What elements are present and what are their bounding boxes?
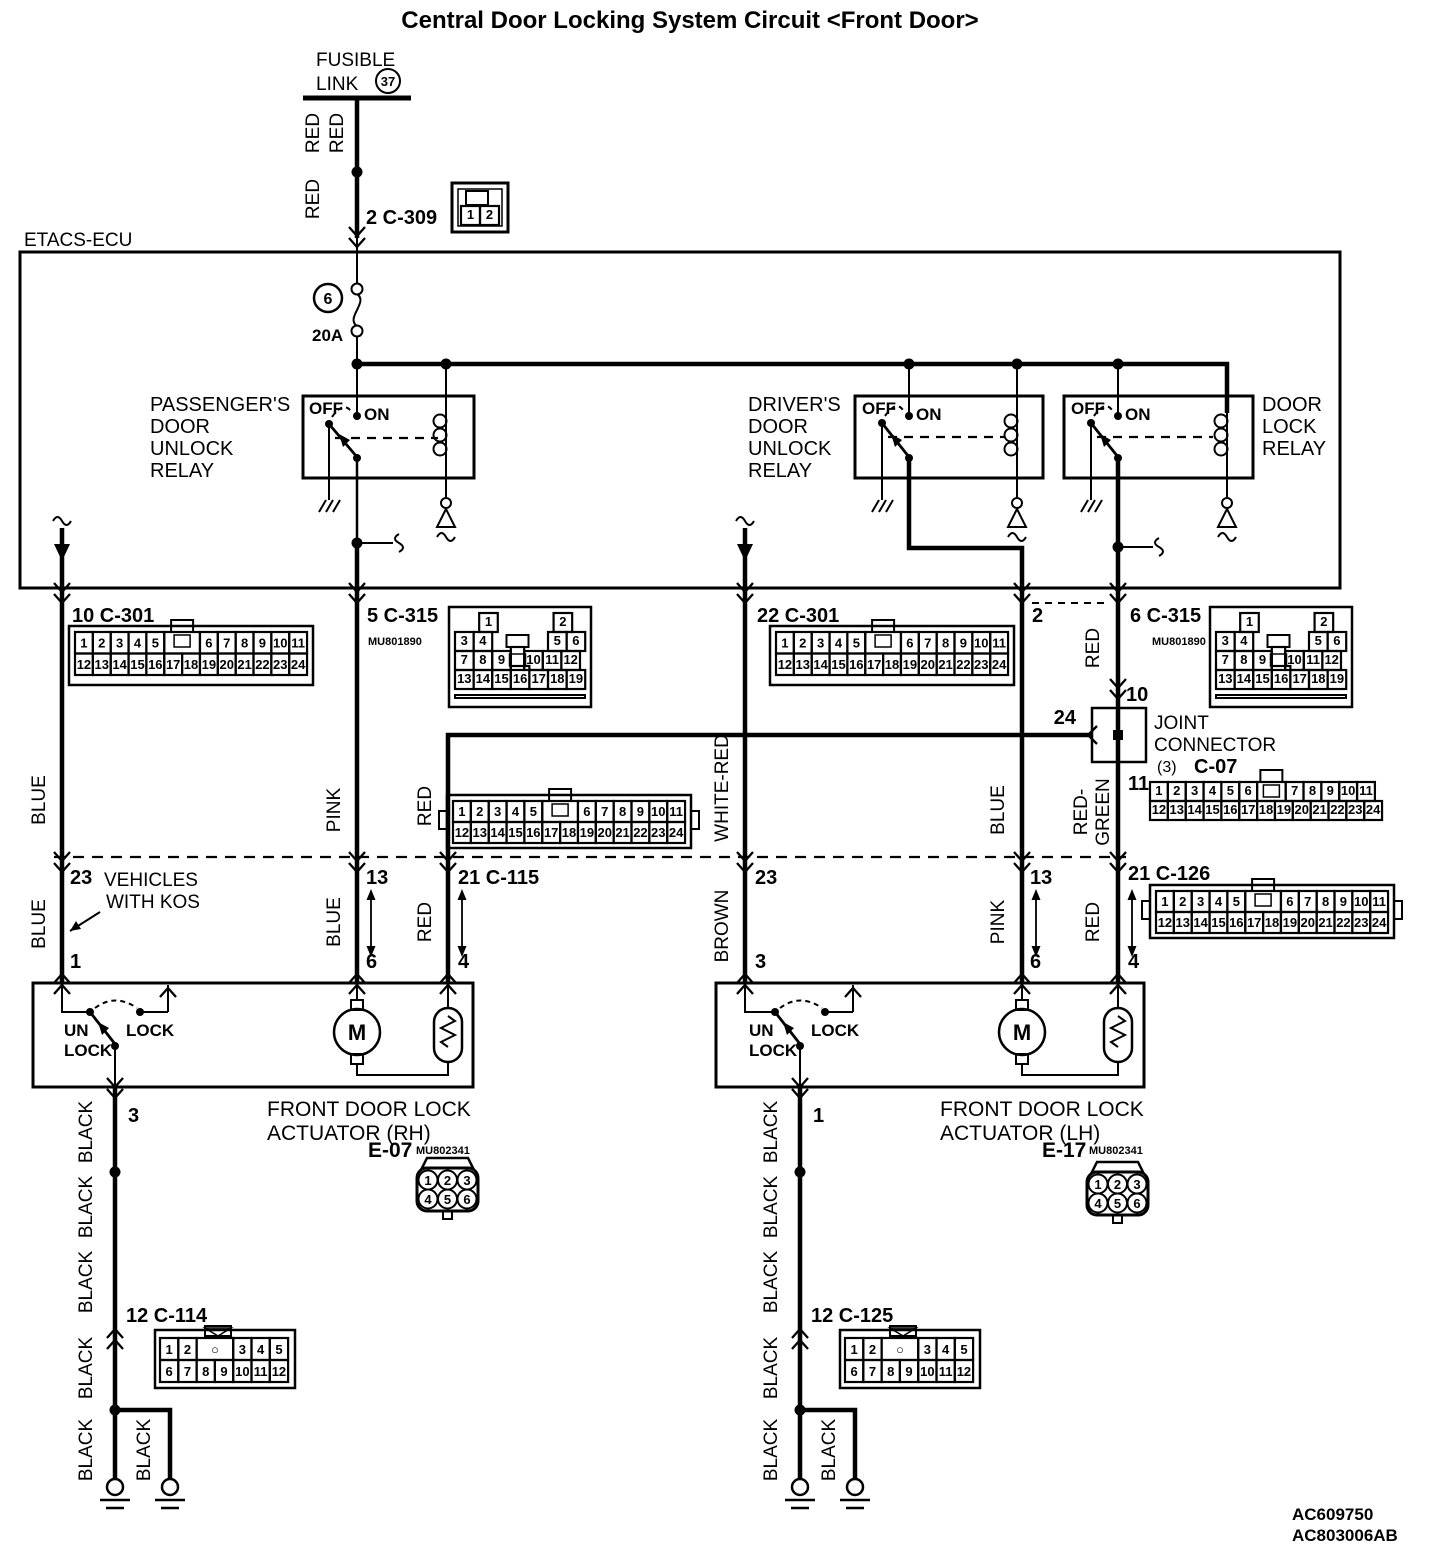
e07-connector-face-pin: 3 <box>463 1173 470 1188</box>
c315-right-pin-grid-pin: 1 <box>1246 614 1253 629</box>
c315-left-pin-grid-pin: 4 <box>479 633 487 648</box>
c115-pin-grid-pin: 17 <box>544 825 558 840</box>
contact-dot <box>1114 454 1122 462</box>
c301-right-pin-grid-pin: 22 <box>956 657 970 672</box>
c315-right-pin-grid-pin: 17 <box>1292 671 1306 686</box>
c115-pin-grid-pin: 5 <box>530 804 537 819</box>
c07-pin-grid-pin: 1 <box>1155 783 1162 798</box>
pin-number: 4 <box>458 951 470 973</box>
c115-pin-grid-pin: 24 <box>669 825 684 840</box>
switch-position: LOCK <box>64 1041 113 1060</box>
c07-pin-grid-pin: 19 <box>1277 802 1291 817</box>
c301-left-pin-grid-pin: 23 <box>273 657 287 672</box>
c301-left-pin-grid-pin: 9 <box>259 636 266 651</box>
c315-right-pin-grid-pin: 12 <box>1324 652 1338 667</box>
c315-left-pin-grid-pin: 1 <box>485 614 492 629</box>
c301-left-pin-grid-pin: 13 <box>95 657 109 672</box>
c301-right-pin-grid-pin: 11 <box>992 636 1006 651</box>
c315-right-pin-grid-pin: 4 <box>1240 633 1248 648</box>
fusible-link-label-2: LINK <box>316 74 359 95</box>
c315-right-pin-grid-pin: 9 <box>1259 652 1266 667</box>
pin-number: 1 <box>70 951 81 973</box>
contact-dot <box>111 1042 119 1050</box>
c301-left-pin-grid-pin: 8 <box>241 636 248 651</box>
c114-pin-grid-pin: 3 <box>239 1342 246 1357</box>
switch-position: LOCK <box>811 1021 860 1040</box>
e07-connector-face-pin: 2 <box>444 1173 451 1188</box>
switch-position: LOCK <box>126 1021 175 1040</box>
c115-pin-grid-pin: 2 <box>476 804 483 819</box>
wire-color-blue: BLUE <box>988 785 1009 835</box>
switch-position: UN <box>749 1021 774 1040</box>
pin-number: 1 <box>813 1105 824 1127</box>
c126-pin-grid-pin: 4 <box>1215 894 1223 909</box>
c301-right-pin-grid-pin: 5 <box>853 636 860 651</box>
wire-color-red: RED <box>327 113 348 153</box>
c114-pin-grid-pin: 9 <box>220 1364 227 1379</box>
c301-right-pin-grid-pin: 14 <box>813 657 828 672</box>
c301-left-pin-grid-pin: 17 <box>166 657 180 672</box>
joint-connector-label: (3) <box>1157 759 1177 776</box>
c126-pin-grid-pin: 20 <box>1300 915 1314 930</box>
c301-right-pin-grid-pin: 10 <box>974 636 988 651</box>
c125-pin-grid-pin: 12 <box>957 1364 971 1379</box>
c115-pin-grid-pin: 1 <box>458 804 465 819</box>
fuse-terminal-top <box>352 284 363 295</box>
pin-number: 11 <box>1128 773 1149 795</box>
c301-right-pin-grid-pin: 24 <box>992 657 1007 672</box>
pin-number: 13 <box>366 867 388 889</box>
wire-color-black: BLACK <box>761 1251 782 1314</box>
c07-pin-grid-pin: 15 <box>1205 802 1219 817</box>
c315-right-pin-grid-pin: 11 <box>1306 652 1320 667</box>
c315-right-pin-grid-pin: 18 <box>1311 671 1325 686</box>
c07-pin-grid-pin: 10 <box>1341 783 1355 798</box>
c315-right-pin-grid-pin: 19 <box>1330 671 1344 686</box>
pin-connector: 10 C-301 <box>72 605 154 627</box>
c315-right-pin-grid-pin: 8 <box>1240 652 1247 667</box>
c126-pin-grid-pin: 24 <box>1372 915 1387 930</box>
junction-dot <box>1012 359 1023 370</box>
c115-pin-grid-pin: 15 <box>508 825 522 840</box>
c114-pin-grid-pin: 7 <box>184 1364 191 1379</box>
c315-right-pin-grid-pin: 3 <box>1222 633 1229 648</box>
joint-connector-label: JOINT <box>1154 713 1209 734</box>
c126-pin-grid-pin: 2 <box>1179 894 1186 909</box>
c315-right-pin-grid-pin: 2 <box>1320 614 1327 629</box>
c125-pin-grid-pin: 5 <box>960 1342 967 1357</box>
connector-part-no: MU802341 <box>416 1145 470 1157</box>
c315-left-pin-grid-pin: 10 <box>526 652 540 667</box>
c125-pin-grid-pin: 7 <box>869 1364 876 1379</box>
junction-dot <box>795 1405 806 1416</box>
junction-dot <box>1113 359 1124 370</box>
c126-pin-grid-pin: 1 <box>1161 894 1168 909</box>
actuator-connector: E-07 <box>368 1139 412 1162</box>
pin-number: 23 <box>70 867 92 889</box>
c07-pin-grid-pin: 5 <box>1227 783 1234 798</box>
c301-left-pin-grid-pin: 5 <box>152 636 159 651</box>
c126-pin-grid-pin: 9 <box>1340 894 1347 909</box>
relay-name: UNLOCK <box>748 438 832 460</box>
switch-position: UN <box>64 1021 89 1040</box>
c309-pin-grid-pin: 1 <box>467 207 474 222</box>
c126-pin-grid-pin: 18 <box>1265 915 1279 930</box>
ground-symbol <box>792 1479 808 1495</box>
c315-right-pin-grid-pin: 7 <box>1222 652 1229 667</box>
c126-pin-grid-pin: 23 <box>1354 915 1368 930</box>
wire-color-blue: BLUE <box>29 899 50 949</box>
kos-note: WITH KOS <box>106 892 200 913</box>
c315-right-pin-grid-pin: 13 <box>1218 671 1232 686</box>
c115-pin-grid-pin: 10 <box>651 804 665 819</box>
junction-dot <box>110 1405 121 1416</box>
contact-dot <box>821 1008 829 1016</box>
pin-connector-c309: 2 C-309 <box>366 207 437 229</box>
c315-left-pin-grid-pin: 15 <box>494 671 508 686</box>
relay-name: RELAY <box>748 460 812 482</box>
e17-connector-face-pin: 1 <box>1094 1177 1101 1192</box>
c126-pin-grid-pin: 21 <box>1318 915 1332 930</box>
c301-right-pin-grid-pin: 4 <box>835 636 843 651</box>
c07-pin-grid-pin: 2 <box>1173 783 1180 798</box>
c07-pin-grid-pin: 9 <box>1327 783 1334 798</box>
c07-pin-grid-pin: 23 <box>1348 802 1362 817</box>
c07-pin-grid-pin: 17 <box>1241 802 1255 817</box>
pin-connector: 12 C-125 <box>811 1305 893 1327</box>
c115-pin-grid-pin: 6 <box>583 804 590 819</box>
c07-pin-grid-pin: 12 <box>1152 802 1166 817</box>
wiring-diagram-page: Central Door Locking System Circuit <Fro… <box>0 0 1456 1552</box>
wire-color-black: BLACK <box>76 1419 97 1482</box>
wire-color-black: BLACK <box>761 1176 782 1239</box>
relay-name: DRIVER'S <box>748 394 841 416</box>
pin-connector: 5 C-315 <box>367 605 438 627</box>
c126-pin-grid-pin: 5 <box>1233 894 1240 909</box>
c301-left-pin-grid-pin: 12 <box>77 657 91 672</box>
c07-pin-grid-pin: 18 <box>1259 802 1273 817</box>
relay-name: UNLOCK <box>150 438 234 460</box>
e07-connector-face-pin: 5 <box>444 1192 451 1207</box>
fusible-link-label: FUSIBLE <box>316 50 395 71</box>
c301-right-pin-grid-pin: 9 <box>960 636 967 651</box>
e07-connector-face-pin: 4 <box>424 1192 432 1207</box>
c315-left-pin-grid-pin: 6 <box>572 633 579 648</box>
c315-left-pin-grid-pin: 3 <box>461 633 468 648</box>
c125-pin-grid-pin: 4 <box>942 1342 950 1357</box>
c301-right-pin-grid-pin: 23 <box>974 657 988 672</box>
contact-dot <box>771 1008 779 1016</box>
c315-right-pin-grid-pin: 14 <box>1237 671 1252 686</box>
contact-dot <box>905 454 913 462</box>
c114-pin-grid-pin: 4 <box>257 1342 265 1357</box>
c315-right-pin-grid-pin: 5 <box>1315 633 1322 648</box>
c301-left-pin-grid-pin: 6 <box>205 636 212 651</box>
c301-left-pin-grid-pin: 16 <box>148 657 162 672</box>
c126-pin-grid-pin: 10 <box>1354 894 1368 909</box>
c115-pin-grid-pin: 3 <box>494 804 501 819</box>
c301-right-pin-grid-pin: 1 <box>781 636 788 651</box>
fuse-terminal-bottom <box>352 326 363 337</box>
doc-code: AC803006AB <box>1292 1526 1398 1545</box>
motor-letter: M <box>348 1020 366 1045</box>
c115-pin-grid-pin: 12 <box>455 825 469 840</box>
joint-connector-id: C-07 <box>1194 756 1237 778</box>
e17-connector-face-pin: 5 <box>1114 1196 1121 1211</box>
c114-pin-grid-pin: 11 <box>254 1364 268 1379</box>
c301-left-pin-grid-pin: 19 <box>202 657 216 672</box>
relay-name: RELAY <box>150 460 214 482</box>
c309-pin-grid-pin: 2 <box>486 207 493 222</box>
c126-pin-grid-pin: 14 <box>1193 915 1208 930</box>
c126-pin-grid-pin: 16 <box>1229 915 1243 930</box>
c301-right-pin-grid-pin: 20 <box>920 657 934 672</box>
connector-part-no: MU801890 <box>1152 636 1206 648</box>
kos-note: VEHICLES <box>104 870 198 891</box>
fuse-number: 6 <box>324 291 333 308</box>
c114-pin-grid-pin: 1 <box>166 1342 173 1357</box>
relay-name: DOOR <box>150 416 210 438</box>
ground-symbol <box>107 1479 123 1495</box>
c315-left-pin-grid-pin: 19 <box>569 671 583 686</box>
wire-color-red: RED <box>303 179 324 219</box>
c301-right-pin-grid-pin: 2 <box>799 636 806 651</box>
c301-left-pin-grid-pin: 22 <box>255 657 269 672</box>
wire-color-brown: BROWN <box>712 890 733 963</box>
fuse-rating: 20A <box>312 326 343 345</box>
c301-right-pin-grid-pin: 6 <box>906 636 913 651</box>
c315-left-pin-grid-pin: 7 <box>461 652 468 667</box>
c125-pin-grid-pin: 11 <box>939 1364 953 1379</box>
c07-pin-grid-pin: 3 <box>1191 783 1198 798</box>
relay-contact: OFF <box>1071 399 1105 418</box>
c07-pin-grid-pin: 11 <box>1359 783 1373 798</box>
ground-symbol <box>162 1479 178 1495</box>
c115-pin-grid-pin: 7 <box>601 804 608 819</box>
c315-left-pin-grid-pin: 18 <box>550 671 564 686</box>
actuator-name: FRONT DOOR LOCK <box>940 1098 1144 1121</box>
e17-connector-face-pin: 2 <box>1114 1177 1121 1192</box>
c125-pin-grid-pin: 3 <box>924 1342 931 1357</box>
pin-number: 13 <box>1030 867 1052 889</box>
junction-dot <box>441 359 452 370</box>
e17-connector-face-pin: 4 <box>1094 1196 1102 1211</box>
c315-left-pin-grid-pin: 2 <box>559 614 566 629</box>
pin-number: 10 <box>1126 684 1148 706</box>
actuator-name: FRONT DOOR LOCK <box>267 1098 471 1121</box>
c126-pin-grid-pin: 15 <box>1211 915 1225 930</box>
relay-contact: OFF <box>309 399 343 418</box>
c114-pin-grid-pin: 8 <box>202 1364 209 1379</box>
wire-color-black: BLACK <box>761 1337 782 1400</box>
c301-left-pin-grid-pin: 15 <box>130 657 144 672</box>
junction-dot <box>352 167 363 178</box>
wire-color-pink: PINK <box>988 900 1009 945</box>
c301-left-pin-grid-pin: 20 <box>219 657 233 672</box>
contact-dot <box>878 419 886 427</box>
c315-right-pin-grid-pin: 6 <box>1333 633 1340 648</box>
relay-name: DOOR <box>1262 394 1322 416</box>
pin-number: 3 <box>755 951 766 973</box>
wiring-diagram: Central Door Locking System Circuit <Fro… <box>0 0 1456 1552</box>
wire-color-red-green: RED- <box>1071 789 1092 835</box>
contact-dot <box>1114 412 1122 420</box>
pin-number: 23 <box>755 867 777 889</box>
pin-connector: 12 C-114 <box>126 1305 208 1327</box>
c07-pin-grid-pin: 16 <box>1223 802 1237 817</box>
junction-dot <box>904 359 915 370</box>
joint-connector-junction <box>1113 730 1123 740</box>
motor-letter: M <box>1013 1020 1031 1045</box>
c301-left-pin-grid-pin: 1 <box>80 636 87 651</box>
c125-pin-grid-pin: 10 <box>920 1364 934 1379</box>
c126-pin-grid-pin: 22 <box>1336 915 1350 930</box>
wire-color-black: BLACK <box>761 1101 782 1164</box>
e07-connector-face-pin: 6 <box>463 1192 470 1207</box>
wire-color-red: RED <box>415 786 436 826</box>
contact-dot <box>353 454 361 462</box>
c115-pin-grid-pin: 22 <box>633 825 647 840</box>
c115-pin-grid-pin: 14 <box>490 825 505 840</box>
c07-pin-grid-pin: 7 <box>1291 783 1298 798</box>
c126-pin-grid-pin: 11 <box>1372 894 1386 909</box>
c126-pin-grid-pin: 13 <box>1176 915 1190 930</box>
c115-pin-grid-pin: 11 <box>669 804 683 819</box>
pin-connector: 6 C-315 <box>1130 605 1201 627</box>
c114-pin-grid-pin: 6 <box>166 1364 173 1379</box>
relay-name: PASSENGER'S <box>150 394 290 416</box>
c301-right-pin-grid-pin: 13 <box>796 657 810 672</box>
c301-right-pin-grid-pin: 17 <box>867 657 881 672</box>
wire-color-black: BLACK <box>76 1176 97 1239</box>
c301-right-pin-grid-pin: 3 <box>817 636 824 651</box>
wire-color-black: BLACK <box>76 1251 97 1314</box>
relay-contact: ON <box>916 405 942 424</box>
pin-number: 4 <box>1128 951 1140 973</box>
pin-connector: 21 C-115 <box>458 867 539 889</box>
c301-left-pin-grid-pin: 14 <box>112 657 127 672</box>
wire-color-red: RED <box>303 113 324 153</box>
ground-symbol <box>847 1479 863 1495</box>
relay-name: DOOR <box>748 416 808 438</box>
c315-left-pin-grid-pin: 11 <box>545 652 559 667</box>
c315-left-pin-grid-pin: 5 <box>554 633 561 648</box>
contact-dot <box>136 1008 144 1016</box>
c07-pin-grid-pin: 22 <box>1330 802 1344 817</box>
c315-right-pin-grid-pin: 16 <box>1274 671 1288 686</box>
c07-pin-grid-pin: 24 <box>1366 802 1381 817</box>
wire-color-red: RED <box>415 902 436 942</box>
c315-left-pin-grid-pin: 17 <box>531 671 545 686</box>
wire-color-black: BLACK <box>76 1101 97 1164</box>
title: Central Door Locking System Circuit <Fro… <box>401 7 978 34</box>
junction-dot <box>1113 542 1124 553</box>
joint-connector-label: CONNECTOR <box>1154 735 1276 756</box>
c301-right-pin-grid-pin: 16 <box>849 657 863 672</box>
connector-part-no: MU801890 <box>368 636 422 648</box>
e07-connector-face-pin: 1 <box>424 1173 431 1188</box>
c115-pin-grid-pin: 9 <box>637 804 644 819</box>
contact-dot <box>905 412 913 420</box>
contact-dot <box>353 412 361 420</box>
c126-pin-grid-pin: 12 <box>1158 915 1172 930</box>
junction-dot <box>352 538 363 549</box>
c301-left-pin-grid-pin: 7 <box>223 636 230 651</box>
wire-color-blue: BLUE <box>324 897 345 947</box>
c301-left-pin-grid-pin: 24 <box>291 657 306 672</box>
c301-left-pin-grid-pin: 2 <box>98 636 105 651</box>
c07-pin-grid-pin: 21 <box>1312 802 1326 817</box>
e17-connector-face-pin: 3 <box>1133 1177 1140 1192</box>
c115-pin-grid-pin: 4 <box>512 804 520 819</box>
c07-pin-grid-pin: 13 <box>1170 802 1184 817</box>
c301-left-pin-grid-pin: 4 <box>134 636 142 651</box>
c301-right-pin-grid-pin: 7 <box>924 636 931 651</box>
ecu-name: ETACS-ECU <box>24 230 132 251</box>
c126-pin-grid-pin: 19 <box>1283 915 1297 930</box>
wire-color-black: BLACK <box>76 1337 97 1400</box>
c114-pin-grid-pin: 2 <box>184 1342 191 1357</box>
c301-right-pin-grid-pin: 21 <box>938 657 952 672</box>
wire-color-black: BLACK <box>819 1419 840 1482</box>
wire-color-black: BLACK <box>761 1419 782 1482</box>
wire-color-red-green: GREEN <box>1093 778 1114 846</box>
c115-pin-grid-pin: 18 <box>562 825 576 840</box>
c114-pin-grid-pin: 10 <box>235 1364 249 1379</box>
pin-connector: 21 C-126 <box>1128 863 1210 885</box>
c301-right-pin-grid-pin: 19 <box>903 657 917 672</box>
c115-pin-grid-pin: 13 <box>473 825 487 840</box>
c315-right-pin-grid-pin: 10 <box>1287 652 1301 667</box>
contact-dot <box>86 1008 94 1016</box>
c315-right-pin-grid-pin: 15 <box>1255 671 1269 686</box>
c115-pin-grid-pin: 8 <box>619 804 626 819</box>
c315-left-pin-grid-pin: 8 <box>479 652 486 667</box>
c315-left-pin-grid-pin: 16 <box>513 671 527 686</box>
c07-pin-grid-pin: 8 <box>1309 783 1316 798</box>
wire-color-blue: BLUE <box>29 775 50 825</box>
c125-pin-grid-pin: 8 <box>887 1364 894 1379</box>
c07-pin-grid-pin: 6 <box>1245 783 1252 798</box>
c07-pin-grid-pin: 20 <box>1294 802 1308 817</box>
c115-pin-grid-pin: 16 <box>526 825 540 840</box>
c315-left-pin-grid-pin: 14 <box>476 671 491 686</box>
junction-dot <box>795 1167 806 1178</box>
c301-left-pin-grid-pin: 10 <box>273 636 287 651</box>
c301-right-pin-grid-pin: 8 <box>942 636 949 651</box>
connector-part-no: MU802341 <box>1089 1145 1143 1157</box>
relay-contact: ON <box>364 405 390 424</box>
c315-left-pin-grid-pin: 12 <box>563 652 577 667</box>
c301-right-pin-grid-pin: 18 <box>885 657 899 672</box>
c114-pin-grid-pin: 12 <box>272 1364 286 1379</box>
c114-pin-grid-pin: 5 <box>275 1342 282 1357</box>
c07-pin-grid-pin: 4 <box>1209 783 1217 798</box>
c315-left-pin-grid-pin: 9 <box>498 652 505 667</box>
wire-color-white-red: WHITE-RED <box>712 734 733 842</box>
pin-number: 2 <box>1032 605 1043 627</box>
c125-pin-grid-pin: 9 <box>905 1364 912 1379</box>
c315-left-pin-grid-pin: 13 <box>457 671 471 686</box>
c301-left-pin-grid-pin: 11 <box>291 636 305 651</box>
relay-name: RELAY <box>1262 438 1326 460</box>
relay-name: LOCK <box>1262 416 1317 438</box>
c125-pin-grid-pin: ○ <box>896 1342 904 1357</box>
e17-connector-face-pin: 6 <box>1133 1196 1140 1211</box>
wire-color-pink: PINK <box>324 788 345 833</box>
c125-pin-grid-pin: 6 <box>851 1364 858 1379</box>
c126-pin-grid-pin: 3 <box>1197 894 1204 909</box>
